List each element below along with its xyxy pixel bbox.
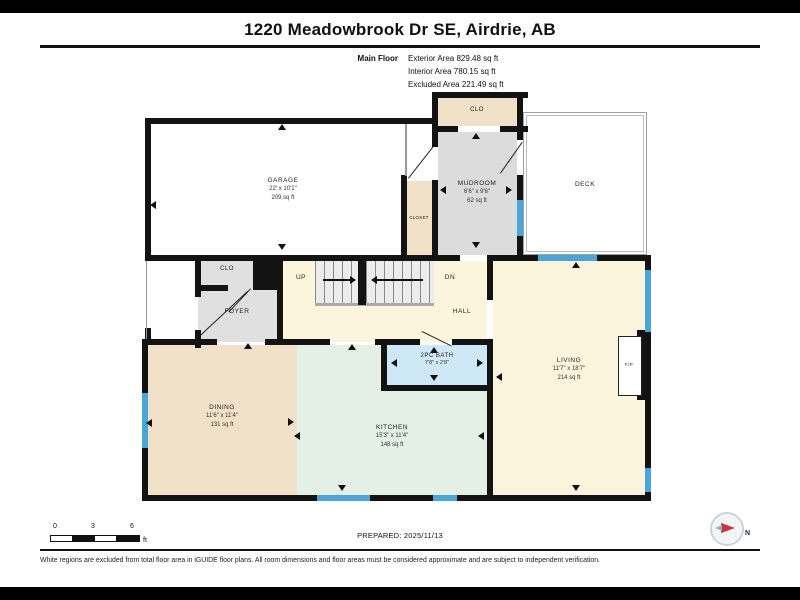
opening-arrow — [288, 418, 294, 426]
opening-arrow — [244, 343, 252, 349]
hall-label: HALL — [422, 307, 502, 316]
opening-arrow — [338, 485, 346, 491]
room-name: HALL — [422, 307, 502, 316]
opening-arrow — [278, 124, 286, 130]
room-name: DN — [432, 273, 468, 282]
window — [433, 495, 457, 501]
stairs-down-arrow-line — [377, 279, 423, 281]
opening-arrow — [348, 344, 356, 350]
room-dims: 7'8" x 2'8" — [387, 360, 487, 367]
closet-label: CLOSET — [404, 213, 434, 222]
floorplan-page: 1220 Meadowbrook Dr SE, Airdrie, AB Main… — [0, 0, 800, 600]
room-name: FOYER — [197, 307, 277, 316]
room-area: 131 sq ft — [172, 421, 272, 430]
wall — [517, 92, 523, 140]
opening-arrow — [496, 373, 502, 381]
window — [645, 270, 651, 332]
room-name: GARAGE — [233, 176, 333, 185]
living-label: LIVING 11'7" x 18'7" 214 sq ft — [519, 356, 619, 382]
stairs-up-label: UP — [283, 273, 319, 282]
disclaimer-text: White regions are excluded from total fl… — [40, 557, 760, 564]
garage-door-partition — [405, 124, 407, 176]
fireplace-label: F/P — [616, 360, 642, 369]
scale-segment — [94, 535, 118, 542]
wall — [277, 339, 330, 345]
wall — [358, 255, 366, 305]
room-name: CLO — [201, 265, 253, 274]
compass-north-label: N — [745, 530, 750, 537]
window — [317, 495, 370, 501]
room-area: 209 sq ft — [233, 194, 333, 203]
room-area: 148 sq ft — [342, 441, 442, 450]
wall — [253, 255, 283, 290]
room-name: CLOSET — [404, 213, 434, 222]
scale-segment — [50, 535, 74, 542]
room-name: MUDROOM — [437, 179, 517, 188]
garage-label: GARAGE 22' x 10'1" 209 sq ft — [233, 176, 333, 202]
room-area: 62 sq ft — [437, 197, 517, 206]
opening-arrow — [572, 485, 580, 491]
foyer-label: FOYER — [197, 307, 277, 316]
mudroom-label: MUDROOM 6'6" x 9'6" 62 sq ft — [437, 179, 517, 205]
foyer-closet-label: CLO — [201, 265, 253, 274]
room-name: KITCHEN — [342, 423, 442, 432]
window — [538, 255, 597, 261]
compass-tail-icon — [715, 525, 722, 531]
compass-needle-icon — [721, 523, 735, 533]
wall — [487, 255, 493, 300]
footer-rule — [40, 549, 760, 551]
scale-tick-3: 3 — [91, 523, 95, 530]
scale-segment — [116, 535, 140, 542]
compass-icon — [710, 512, 744, 546]
window — [517, 200, 523, 236]
room-dims: 15'3" x 11'4" — [342, 432, 442, 441]
stairs-down-arrowhead — [371, 276, 377, 284]
dining-label: DINING 11'6" x 11'4" 131 sq ft — [172, 403, 272, 429]
scale-tick-6: 6 — [130, 523, 134, 530]
stairs-edge — [315, 303, 434, 306]
room-area: 214 sq ft — [519, 374, 619, 383]
room-dims: 22' x 10'1" — [233, 185, 333, 194]
wall — [145, 255, 460, 261]
room-name: CLO — [437, 106, 517, 115]
scale-tick-0: 0 — [53, 523, 57, 530]
wall — [432, 92, 438, 147]
wall — [432, 126, 458, 132]
scale-segment — [72, 535, 96, 542]
mudroom-closet-label: CLO — [437, 106, 517, 115]
wall — [142, 495, 651, 501]
wall — [500, 126, 528, 132]
stairs-up-arrow-line — [323, 279, 350, 281]
opening-arrow — [150, 201, 156, 209]
kitchen-label: KITCHEN 15'3" x 11'4" 148 sq ft — [342, 423, 442, 449]
room-name: DINING — [172, 403, 272, 412]
opening-arrow — [478, 432, 484, 440]
room-dims: 11'7" x 18'7" — [519, 365, 619, 374]
wall — [145, 118, 151, 261]
wall — [381, 385, 493, 391]
wall — [195, 285, 228, 291]
room-name: LIVING — [519, 356, 619, 365]
room-dims: 11'6" x 11'4" — [172, 412, 272, 421]
porch-edge-line — [146, 261, 147, 339]
wall — [487, 339, 493, 501]
stairs-up-arrowhead — [350, 276, 356, 284]
window — [645, 468, 651, 492]
floorplan-canvas: GARAGE 22' x 10'1" 209 sq ft CLO MUDROOM… — [0, 0, 800, 600]
wall — [142, 339, 217, 345]
prepared-date: PREPARED: 2025/11/13 — [300, 531, 500, 540]
opening-arrow — [472, 242, 480, 248]
bath-label: 2PC BATH 7'8" x 2'8" — [387, 352, 487, 367]
opening-arrow — [430, 375, 438, 381]
wall — [195, 330, 201, 348]
scale-unit: ft — [143, 537, 147, 544]
room-name: 2PC BATH — [387, 352, 487, 360]
wall — [277, 288, 283, 345]
opening-arrow — [572, 262, 580, 268]
room-name: UP — [283, 273, 319, 282]
room-dims: 6'6" x 9'6" — [437, 188, 517, 197]
opening-arrow — [278, 244, 286, 250]
opening-arrow — [472, 133, 480, 139]
wall — [432, 92, 528, 98]
opening-arrow — [146, 419, 152, 427]
wall — [145, 118, 437, 124]
room-name: DECK — [545, 180, 625, 189]
opening-arrow — [294, 432, 300, 440]
room-name: F/P — [616, 360, 642, 369]
stairs-down-label: DN — [432, 273, 468, 282]
deck-label: DECK — [545, 180, 625, 189]
